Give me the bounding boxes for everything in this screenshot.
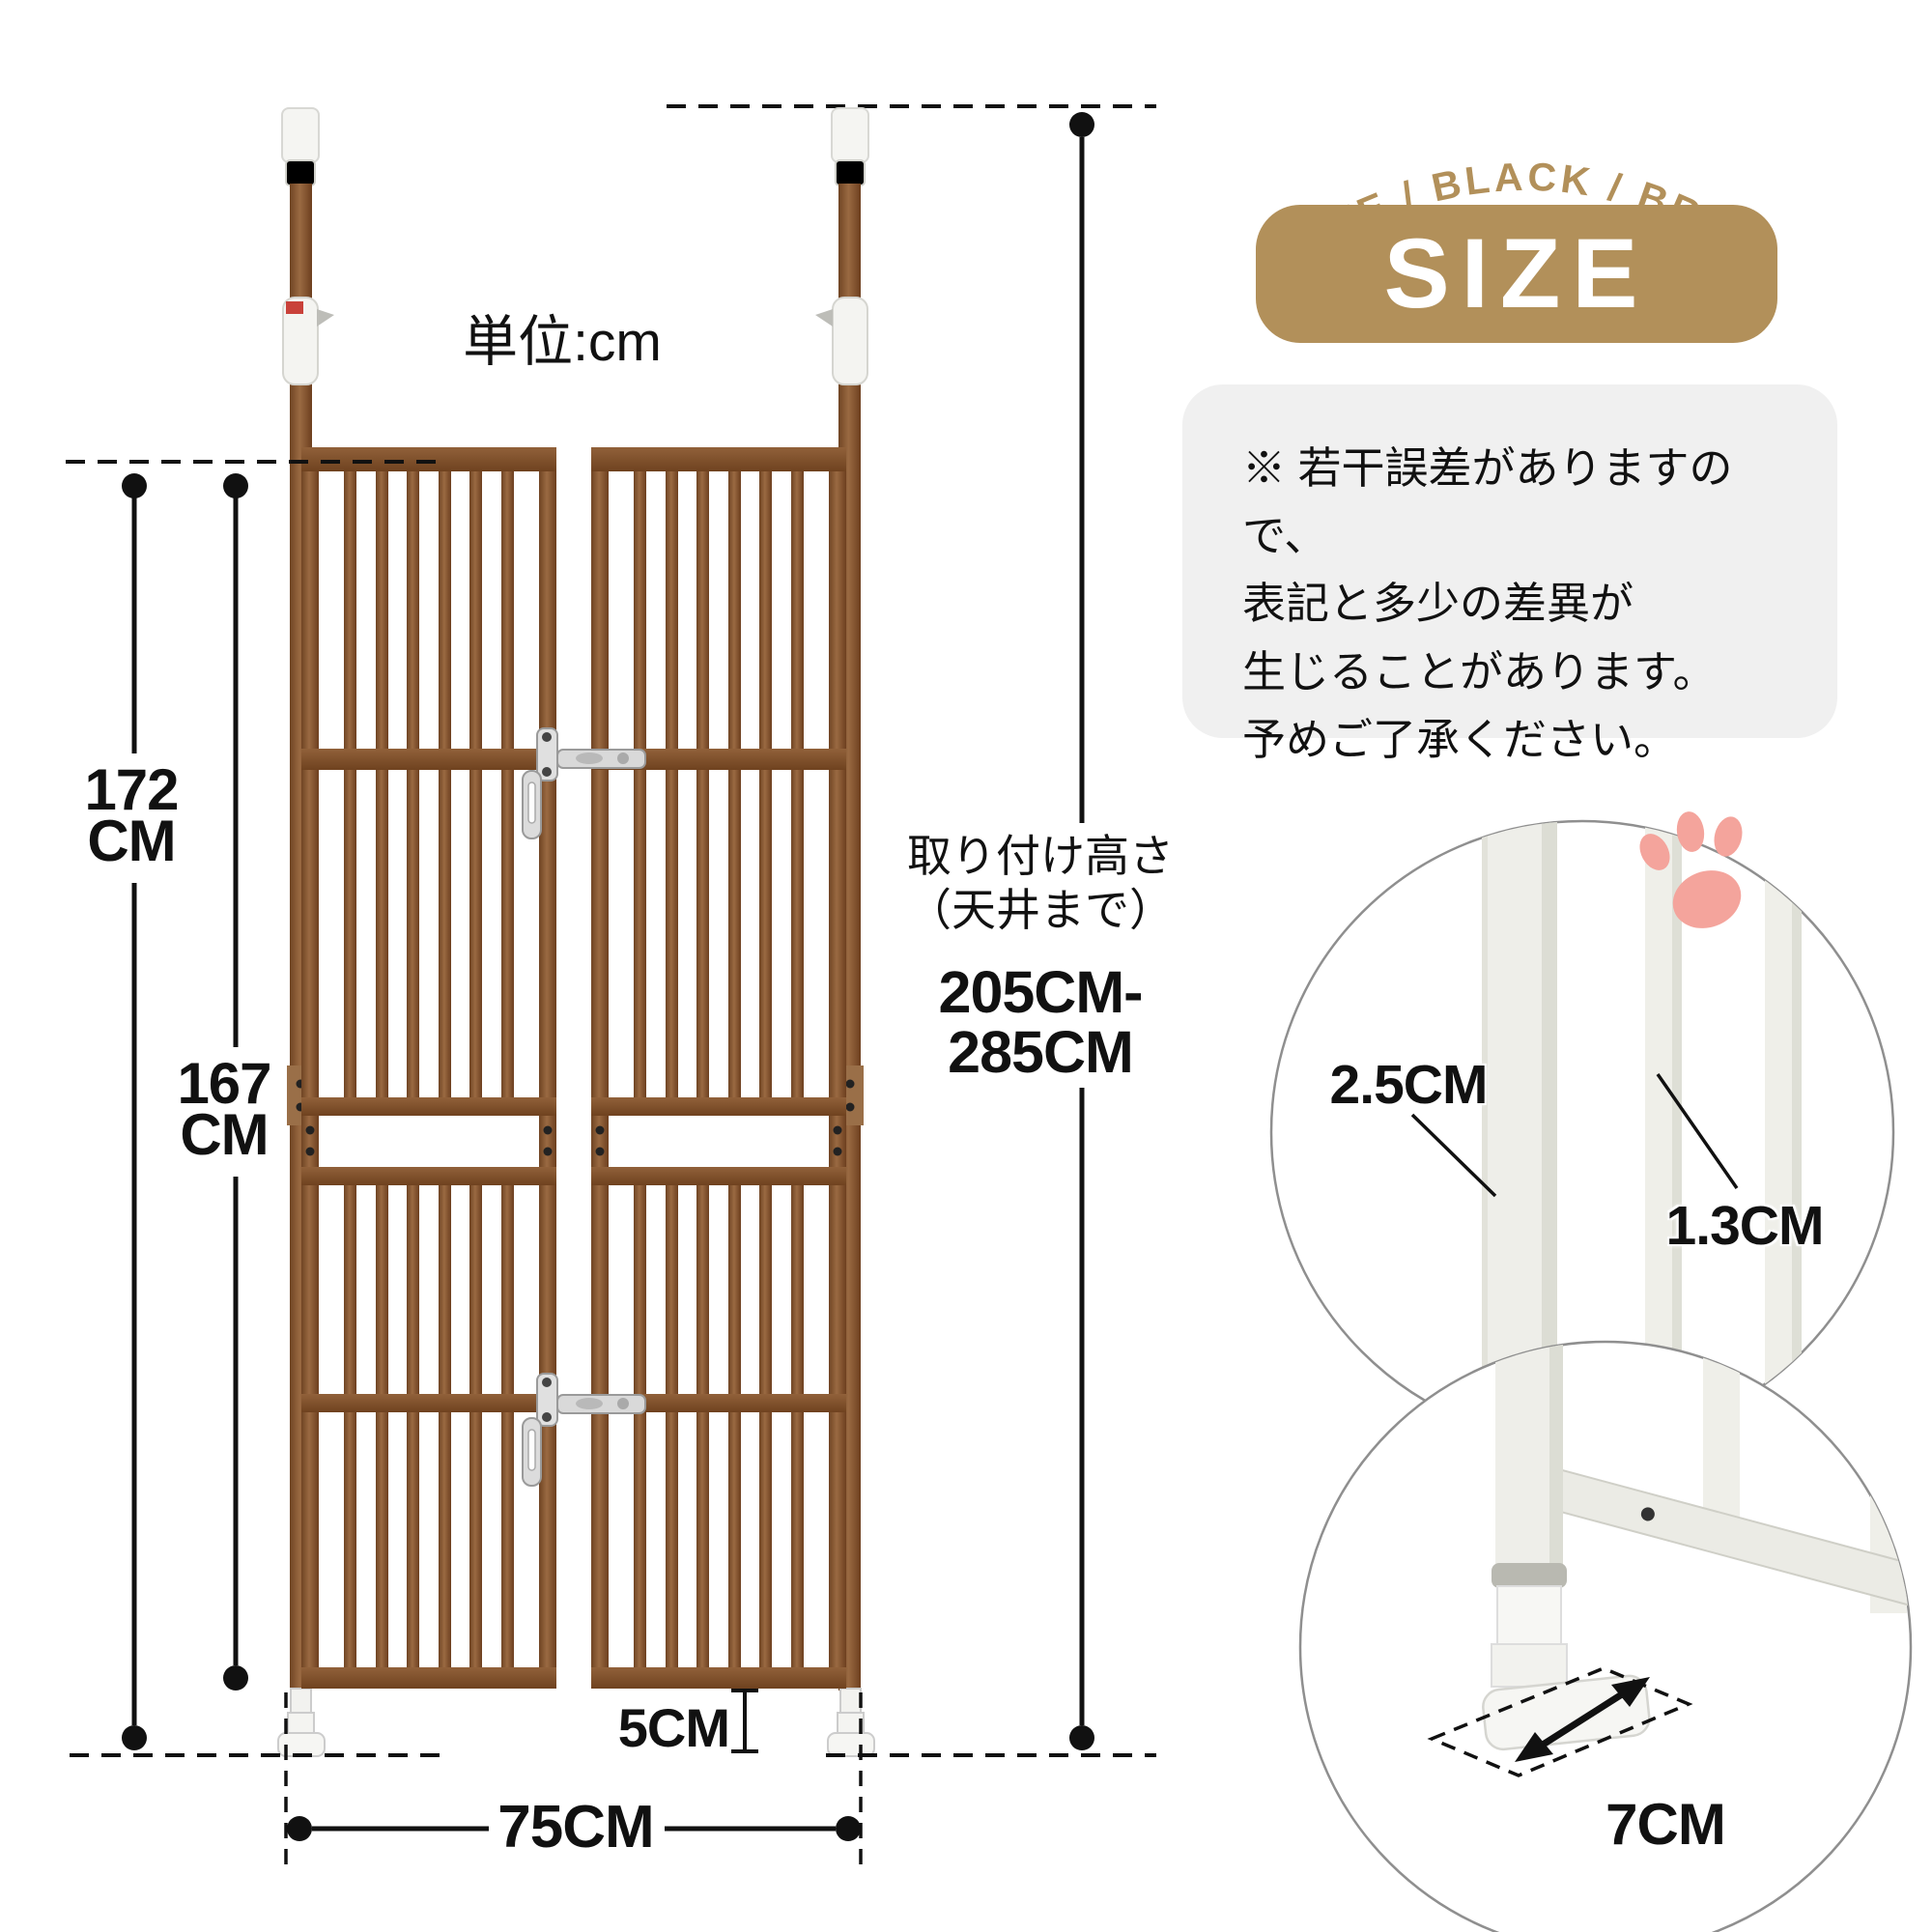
dim-172-unit: CM <box>87 816 175 867</box>
size-badge-label: SIZE <box>1384 217 1650 330</box>
mount-height-label-1: 取り付け高さ <box>907 829 1174 883</box>
gate-right-door <box>591 447 846 1689</box>
note-line: 生じることがあります。 <box>1242 639 1799 706</box>
note-line: ※ 若干誤差がありますので、 <box>1242 435 1799 570</box>
detail-foot-depth-label: 7CM <box>1605 1791 1725 1858</box>
note-line: 予めご了承ください。 <box>1242 706 1799 774</box>
mount-height-block: 取り付け高さ （天井まで） 205CM- 285CM <box>900 829 1180 1083</box>
dim-75cm-label: 75CM <box>497 1793 653 1861</box>
open-band <box>609 1116 829 1167</box>
note-line: 表記と多少の差異が <box>1242 570 1799 638</box>
mount-height-value-1: 205CM- <box>939 962 1143 1022</box>
disclaimer-note-box: ※ 若干誤差がありますので、 表記と多少の差異が 生じることがあります。 予めご… <box>1182 384 1837 738</box>
dim-line-172 <box>122 473 147 1750</box>
lower-latch <box>523 1374 645 1486</box>
gate-left-door <box>301 447 556 1689</box>
open-band <box>319 1116 539 1167</box>
mount-height-value-2: 285CM <box>948 1022 1133 1082</box>
dim-167-unit: CM <box>180 1110 268 1161</box>
door-bars <box>634 471 804 1667</box>
size-badge: SIZE <box>1256 205 1777 343</box>
product-size-infographic: WHITE / BLACK / BROWN 単位:cm 172 CM 167 C… <box>0 0 1932 1932</box>
door-bars <box>344 471 514 1667</box>
dim-line-5cm <box>731 1690 758 1751</box>
detail-bar-diameter-label: 1.3CM <box>1666 1194 1824 1258</box>
detail-pole-diameter-label: 2.5CM <box>1330 1053 1488 1117</box>
upper-latch <box>523 728 645 838</box>
dim-5cm-label: 5CM <box>580 1696 729 1759</box>
unit-label: 単位:cm <box>463 298 662 377</box>
mount-height-label-2: （天井まで） <box>907 883 1174 937</box>
dim-172-label: 172 CM <box>73 765 189 867</box>
dim-167-label: 167 CM <box>166 1059 282 1161</box>
